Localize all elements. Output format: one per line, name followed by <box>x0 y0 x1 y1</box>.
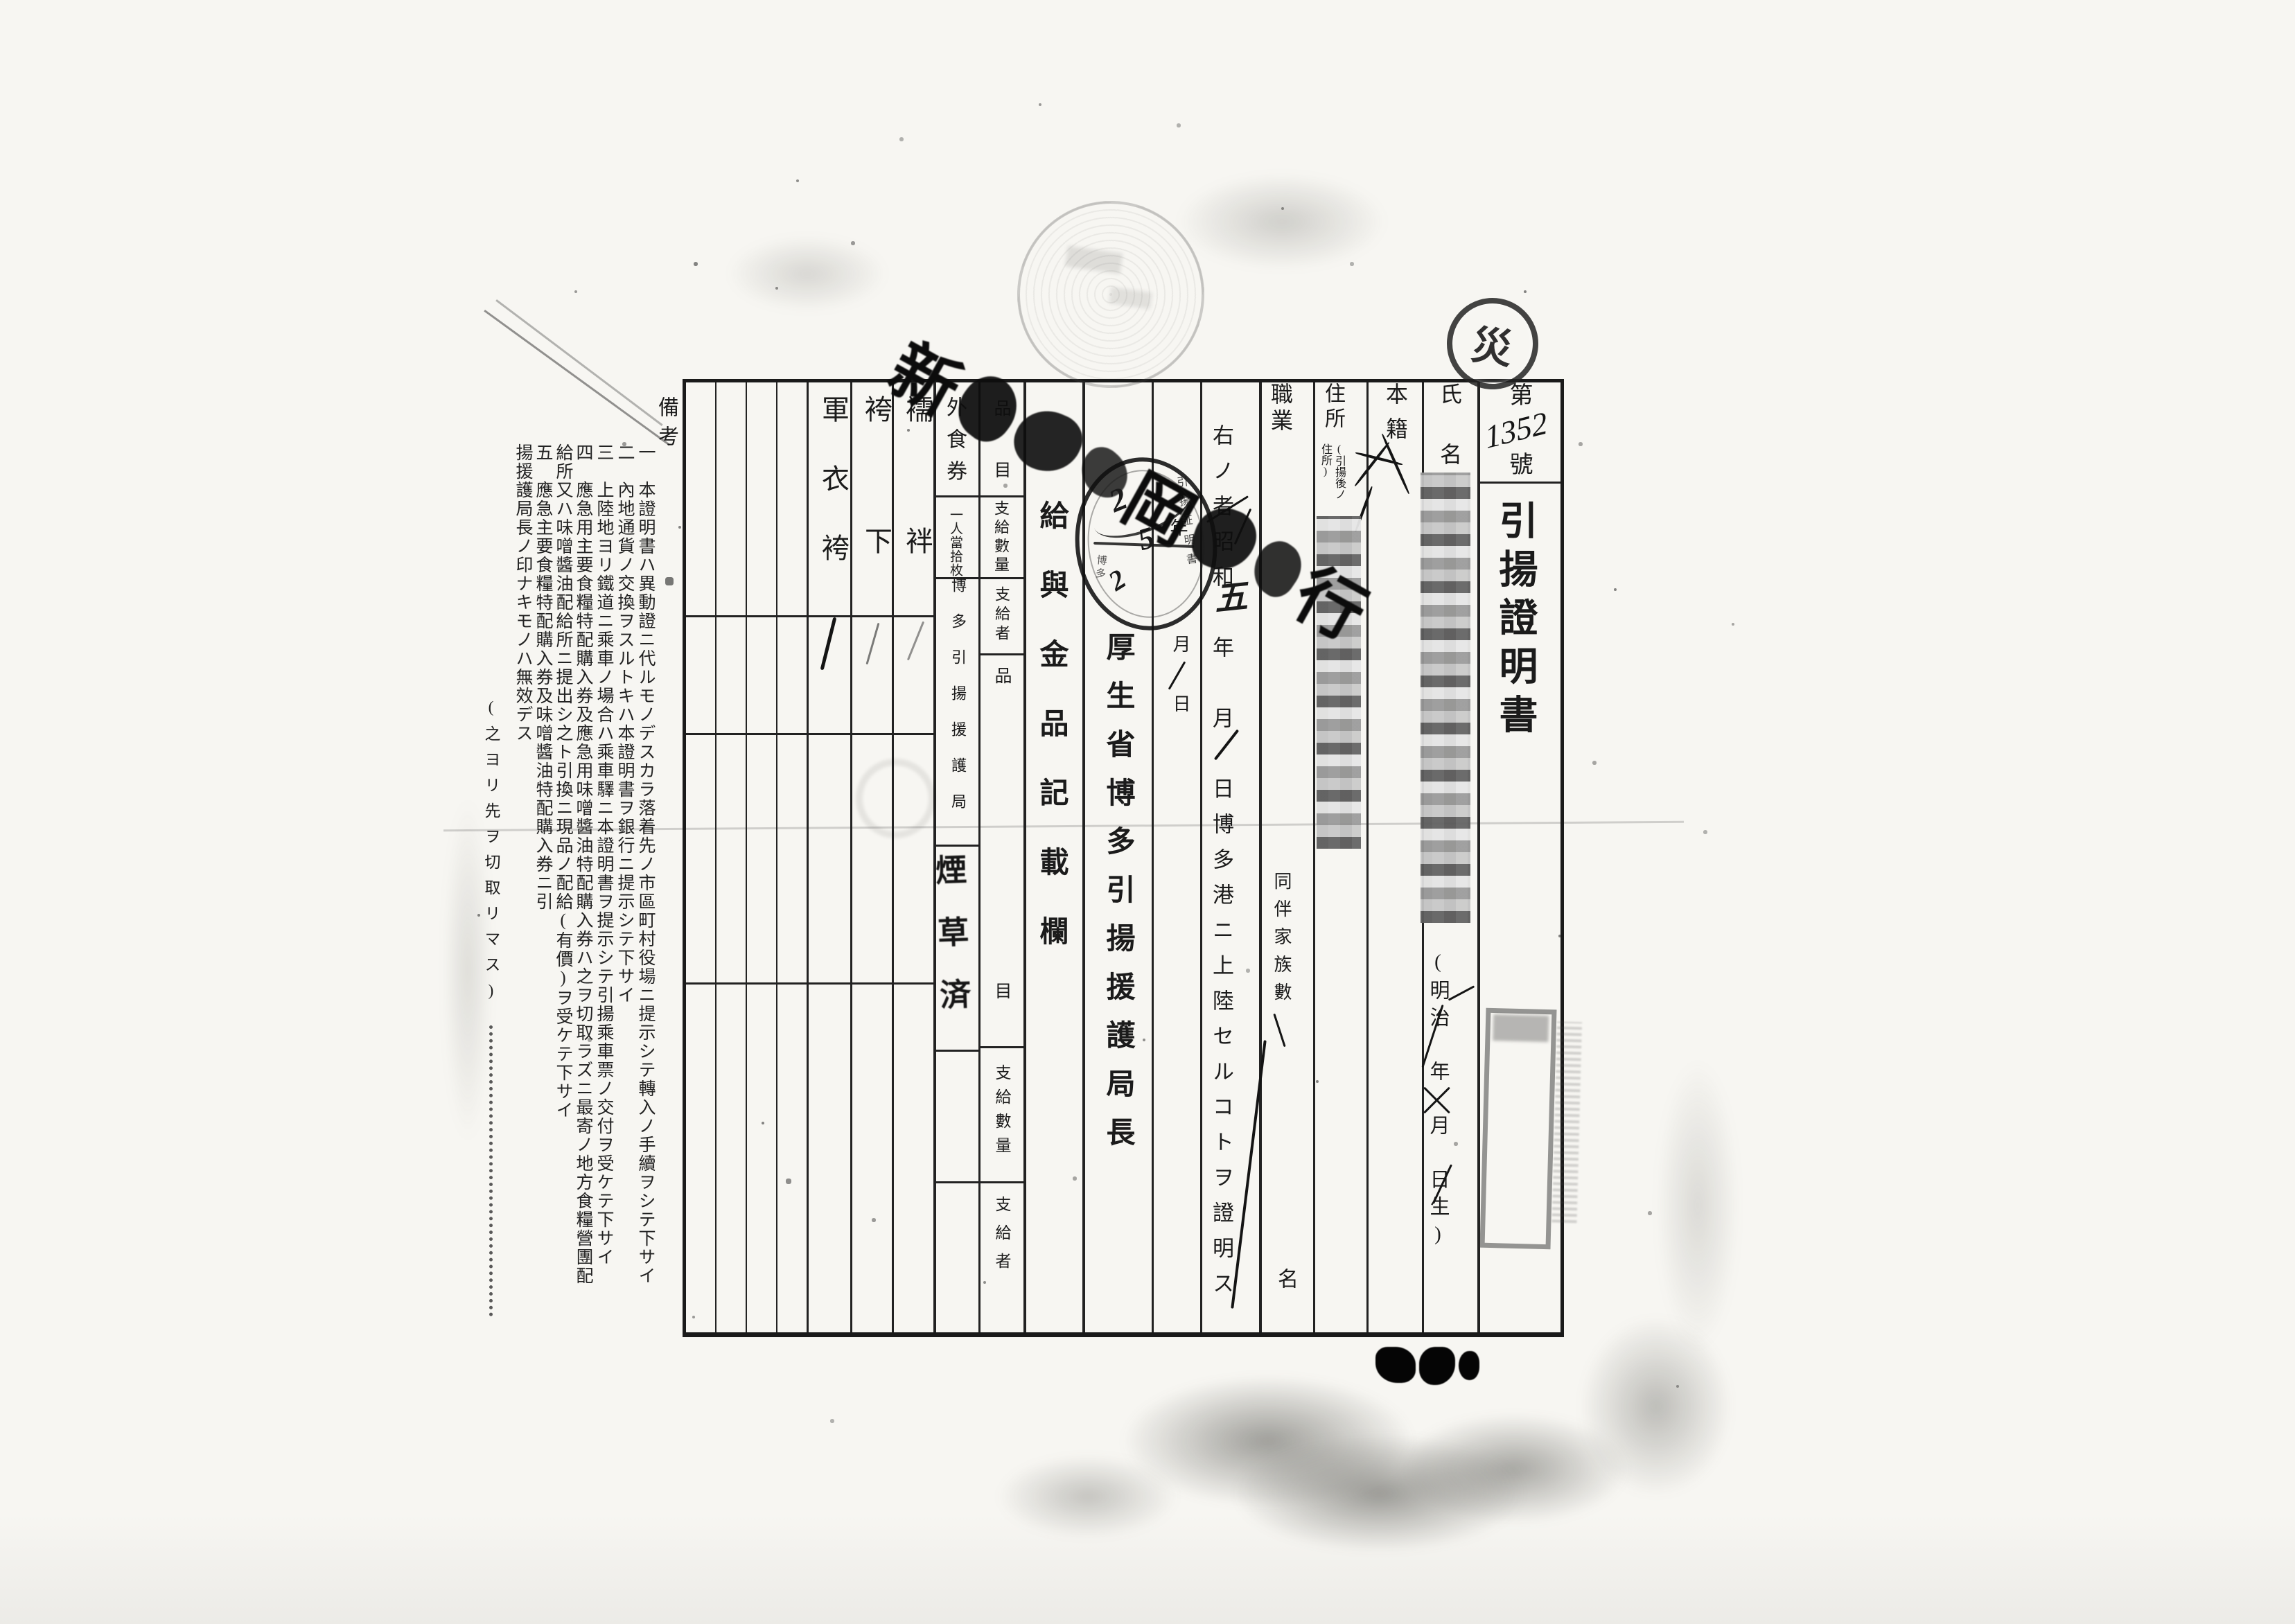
row-line <box>686 615 935 617</box>
paper-stain <box>1656 1060 1739 1351</box>
remarks-header: 備考 <box>656 396 676 454</box>
ink-speck-field <box>0 0 1 1</box>
perforation-line <box>489 1025 493 1316</box>
scratch-line <box>495 299 662 426</box>
row-line <box>686 733 935 735</box>
column-line <box>1477 382 1480 1332</box>
certificate-number-suffix: 號 <box>1506 452 1530 475</box>
occupation-label: 職業 <box>1269 382 1292 435</box>
row-line <box>933 1181 1026 1183</box>
column-line <box>807 382 809 1332</box>
domicile-label: 本籍 <box>1384 382 1407 452</box>
faint-postmark-stamp <box>1005 189 1217 400</box>
row-line <box>933 845 981 847</box>
row-line <box>978 653 1026 655</box>
remark-number: 四 <box>574 443 592 462</box>
issuer-title: 厚生省博多引揚援護局長 <box>1103 632 1132 1165</box>
illegible-stamp-glyph <box>1459 1351 1479 1380</box>
column-line <box>1313 382 1315 1332</box>
item-name-gun-ikо: 軍衣袴 <box>819 395 847 603</box>
paper-stain <box>1233 1434 1524 1552</box>
postmark-smudge <box>1109 287 1152 309</box>
column-line <box>1023 382 1026 1332</box>
remark-note-1: 一 本證明書ハ異動證ニ代ルモノデスカラ落着先ノ市區町村役場ニ提示シテ轉入ノ手續ヲ… <box>635 443 656 1303</box>
address-sublabel: (引揚後ノ住所) <box>1318 443 1346 507</box>
sai-stamp-char: 災 <box>1468 312 1516 375</box>
issue-date-month: 月 <box>1171 635 1189 653</box>
column-line <box>850 382 852 1332</box>
companion-family-unit: 名 <box>1275 1268 1296 1289</box>
scratch-line <box>484 310 670 445</box>
remark-text: 應急主要食糧特配購入券及味噌醬油特配購入券ニ引揚援護局長ノ印ナキモノハ無效デス <box>513 443 552 911</box>
benefits-entry-quantity: 一人當拾枚 <box>949 508 962 577</box>
paper-stain <box>1580 1316 1732 1497</box>
postmark-smudge <box>1065 246 1123 274</box>
remark-note-5: 五 應急主要食糧特配購入券及味噌醬油特配購入券ニ引揚援護局長ノ印ナキモノハ無效デ… <box>512 443 553 928</box>
tobacco-issued-stamp: 煙草済 <box>931 853 969 1041</box>
remark-number: 三 <box>595 443 613 462</box>
remark-text: 內地通貨ノ交換ヲスルトキハ本證明書ヲ銀行ニ提示シテ下サイ <box>615 481 634 1005</box>
remark-text: 上陸地ヨリ鐵道ニ乘車ノ場合ハ乘車驛ニ本證明書ヲ提示シテ引揚乘車票ノ交付ヲ受ケテ下… <box>595 481 613 1266</box>
remark-text: 應急用主要食糧特配購入券及應急用味噌醬油特配購入券ハ之ヲ切取ラズニ最寄ノ地方食糧… <box>554 443 592 1285</box>
rect-stamp-grain <box>1551 1021 1582 1223</box>
column-line <box>715 382 716 1332</box>
illegible-stamp-glyph <box>1375 1347 1416 1383</box>
rect-frame-stamp <box>1479 1008 1556 1250</box>
column-line <box>1366 382 1369 1332</box>
paper-stain <box>728 236 887 312</box>
remark-text: 本證明書ハ異動證ニ代ルモノデスカラ落着先ノ市區町村役場ニ提示シテ轉入ノ手續ヲシテ… <box>636 481 655 1285</box>
benefits-label-quantity-2: 支給數量 <box>994 1064 1010 1161</box>
remark-number: 二 <box>615 443 634 462</box>
benefits-entry-issuer: 博多引揚援護局 <box>950 577 965 829</box>
remark-note-3: 三 上陸地ヨリ鐵道ニ乘車ノ場合ハ乘車驛ニ本證明書ヲ提示シテ引揚乘車票ノ交付ヲ受ケ… <box>593 443 614 1303</box>
item-name-kokashita: 袴下 <box>862 395 890 658</box>
illegible-stamp-glyph <box>1419 1347 1455 1385</box>
remark-number: 五 <box>534 443 552 462</box>
item-name-jubаn: 襦袢 <box>903 395 931 658</box>
paper-stain <box>998 1455 1178 1538</box>
rect-stamp-smudge <box>1493 1014 1549 1042</box>
form-title: 引揚證明書 <box>1495 500 1534 743</box>
scanned-certificate-page: 第 1352 號 引揚證明書 氏名 (明治 年 月 日生) 本籍 住所 (引揚後… <box>0 0 2295 1624</box>
row-line <box>686 982 935 985</box>
cut-line-note: (之ヨリ先ヲ切取リマス) <box>483 698 499 1009</box>
column-line <box>978 382 981 1332</box>
column-line <box>776 382 777 1332</box>
row-line <box>933 577 1026 579</box>
companion-family-label: 同伴家族數 <box>1272 872 1290 1010</box>
address-label: 住所 <box>1322 382 1343 432</box>
column-line <box>892 382 894 1332</box>
issue-date-day: 日 <box>1171 694 1189 712</box>
row-line <box>1477 482 1560 484</box>
row-line <box>933 495 1026 497</box>
column-line <box>746 382 747 1332</box>
remark-note-4: 四 應急用主要食糧特配購入券及應急用味噌醬油特配購入券ハ之ヲ切取ラズニ最寄ノ地方… <box>552 443 593 1303</box>
benefits-label-giver-1: 支給者 <box>994 586 1009 644</box>
bottom-ink-stamp <box>1375 1347 1479 1385</box>
paper-stain <box>1123 1375 1414 1507</box>
benefits-label-quantity-1: 支給數量 <box>993 500 1008 575</box>
smudge-ring <box>856 759 935 838</box>
paper-stain <box>1400 1413 1628 1524</box>
benefits-label-giver-2: 支給者 <box>994 1196 1010 1281</box>
remark-note-2: 二 內地通貨ノ交換ヲスルトキハ本證明書ヲ銀行ニ提示シテ下サイ <box>614 443 635 1303</box>
paper-stain <box>1178 173 1386 270</box>
remark-number: 一 <box>636 443 655 462</box>
name-censored-block <box>1421 473 1470 923</box>
illegible-stamp-glyph <box>1005 400 1090 482</box>
benefits-header: 給與金品記載欄 <box>1037 500 1066 985</box>
row-line <box>933 1050 981 1052</box>
